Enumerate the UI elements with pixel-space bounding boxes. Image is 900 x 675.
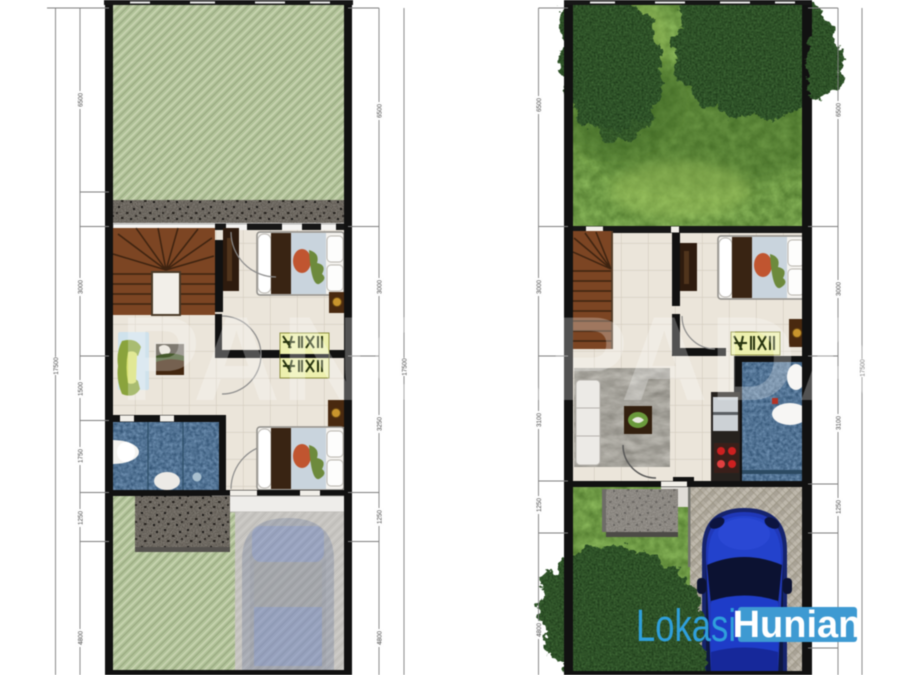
svg-text:6500: 6500 xyxy=(536,98,543,113)
svg-text:Hunian: Hunian xyxy=(733,604,862,646)
svg-text:1250: 1250 xyxy=(376,510,383,525)
svg-text:6500: 6500 xyxy=(77,93,84,108)
svg-text:6500: 6500 xyxy=(376,104,383,119)
svg-text:Lokasi: Lokasi xyxy=(636,600,736,651)
svg-text:1250: 1250 xyxy=(77,511,84,526)
svg-text:1250: 1250 xyxy=(536,498,543,513)
svg-text:4800: 4800 xyxy=(376,631,383,646)
svg-text:17500: 17500 xyxy=(53,357,60,375)
svg-text:4800: 4800 xyxy=(536,623,543,638)
svg-text:PANCAPADA: PANCAPADA xyxy=(120,292,887,426)
svg-text:4800: 4800 xyxy=(77,631,84,646)
svg-text:1750: 1750 xyxy=(77,449,84,464)
svg-text:1500: 1500 xyxy=(77,382,84,397)
svg-text:3000: 3000 xyxy=(77,280,84,295)
svg-text:6500: 6500 xyxy=(835,103,842,118)
svg-text:1250: 1250 xyxy=(835,500,842,515)
